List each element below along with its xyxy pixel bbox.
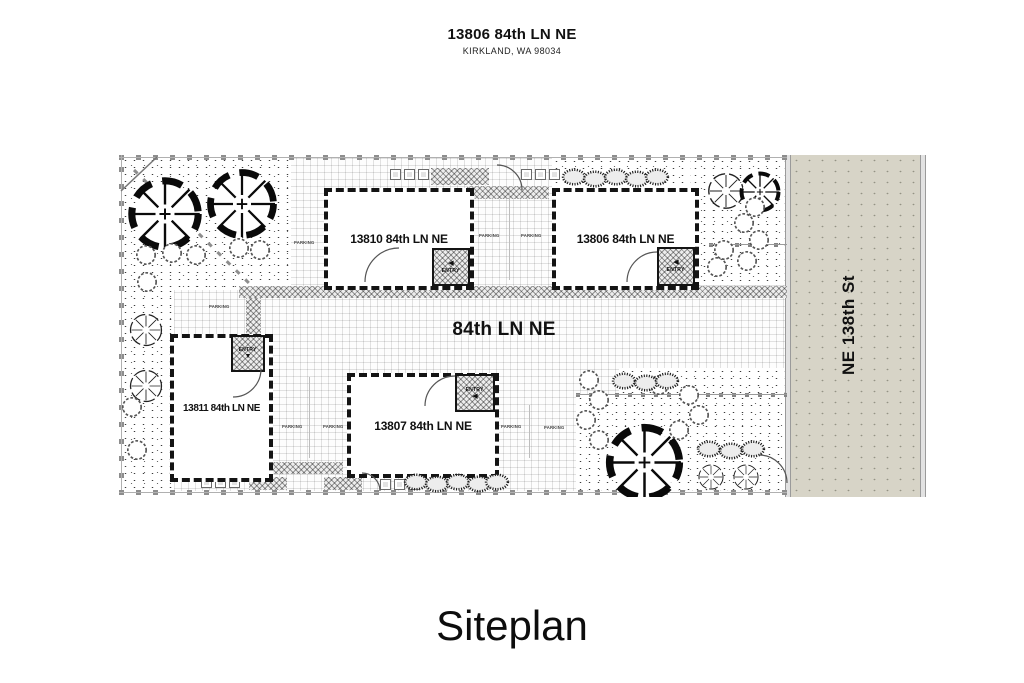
building-13811-label: 13811 84th LN NE [183,403,260,414]
drawing-title: 13806 84th LN NE [0,26,1024,43]
building-13807-label: 13807 84th LN NE [374,419,472,433]
walkway-pad-2 [324,477,362,490]
entry-arrow-left-icon: ◀ [472,394,477,400]
entry-label: ENTRY [466,387,484,392]
entry-13806: ◀ ENTRY [657,247,695,286]
walkway-top-2 [467,186,549,199]
entry-arrow-left-icon: ◀ [448,261,453,267]
street-name-label: NE 138th St [839,243,869,408]
entry-label: ENTRY [239,347,257,352]
street-curb-right [920,155,926,497]
landscape-top-left [121,157,291,290]
sheet-title: Siteplan [0,602,1024,650]
building-13806-label: 13806 84th LN NE [577,232,675,246]
property-boundary-bottom [119,490,787,495]
street-curb-left [785,155,791,497]
parking-label: PARKING [521,234,542,238]
siteplan-drawing: PARKING PARKING PARKING PARKING PARKING … [119,155,925,497]
property-boundary-left [119,155,124,495]
drawing-header: 13806 84th LN NE KIRKLAND, WA 98034 [0,26,1024,56]
landscape-bottom-right-upper [619,368,787,395]
stall-line [309,377,310,458]
landscape-bottom-right [576,395,787,490]
bin-group [521,169,560,180]
lane-name-label: 84th LN NE [419,319,589,341]
parking-label: PARKING [501,425,522,429]
entry-arrow-left-icon: ◀ [673,260,678,266]
stall-line [529,405,530,458]
drawing-subtitle: KIRKLAND, WA 98034 [0,46,1024,56]
building-13810-label: 13810 84th LN NE [350,232,448,246]
landscape-border-line [576,393,787,397]
entry-arrow-down-icon: ▼ [245,354,252,360]
parking-label: PARKING [323,425,344,429]
property-boundary-top [119,155,787,160]
walkway-bottom [271,462,343,474]
walkway-left [246,298,261,335]
walkway-main [239,286,787,298]
siteplan-page: { "header": { "title": "13806 84th LN NE… [0,0,1024,683]
stall-line [509,190,510,280]
walkway-top-1 [431,168,489,185]
parking-label: PARKING [282,425,303,429]
landscape-top-right [691,158,787,285]
bin-group [390,169,429,180]
entry-13807: ENTRY ◀ [455,374,495,412]
landscape-border-line-2 [709,243,787,247]
landscape-left-strip [121,288,174,491]
parking-label: PARKING [479,234,500,238]
bin-group [380,479,419,490]
parking-label: PARKING [544,426,565,430]
parking-label: PARKING [209,305,230,309]
parking-label: PARKING [294,241,315,245]
entry-label: ENTRY [667,267,685,272]
entry-13811: ENTRY ▼ [231,335,265,372]
entry-13810: ◀ ENTRY [432,248,470,286]
entry-label: ENTRY [442,268,460,273]
